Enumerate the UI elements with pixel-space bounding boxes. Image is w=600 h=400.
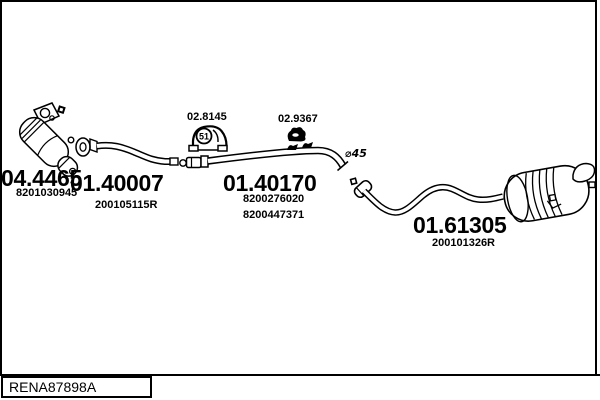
drawing-code: RENA87898A (9, 379, 96, 395)
coupling-sleeve-drawing (180, 158, 201, 168)
rear-pipe-drawing (364, 187, 503, 212)
exhaust-parts-diagram: 51 04.4465 8201030945 01.40007 200105115… (0, 0, 600, 400)
drawing-code-box: RENA87898A (1, 376, 152, 398)
hanger-badge: 51 (199, 132, 209, 142)
bolt-square (58, 106, 64, 112)
clamp-icon (288, 127, 306, 141)
gasket-bolt (68, 137, 74, 143)
gasket-ring (76, 138, 90, 156)
rubber-hanger-icon: 51 (189, 126, 227, 151)
muffler-drawing (500, 162, 595, 225)
catalytic-converter-drawing (14, 103, 97, 183)
tailpipe-tip (573, 164, 595, 182)
front-pipe-drawing (97, 145, 178, 165)
exhaust-line-art: 51 (0, 0, 600, 400)
